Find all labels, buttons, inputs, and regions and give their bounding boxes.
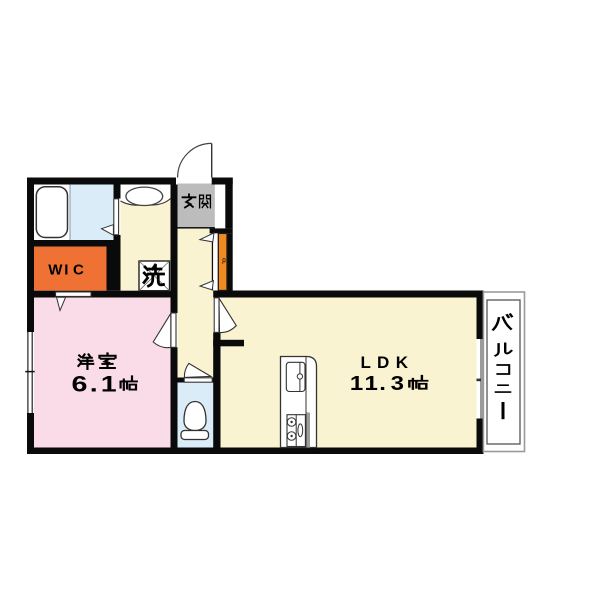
svg-text:CL: CL	[222, 258, 227, 264]
svg-text:6: 6	[71, 373, 87, 397]
svg-text:I: I	[64, 262, 68, 279]
svg-text:1: 1	[350, 372, 363, 395]
svg-text:C: C	[73, 262, 84, 279]
svg-text:W: W	[48, 262, 63, 279]
svg-text:3: 3	[391, 372, 404, 395]
svg-text:1: 1	[365, 372, 378, 395]
svg-text:.: .	[379, 372, 386, 395]
svg-text:1: 1	[101, 373, 117, 397]
svg-text:.: .	[90, 373, 98, 397]
svg-text:L: L	[361, 353, 371, 372]
svg-text:D: D	[377, 353, 389, 372]
svg-text:K: K	[396, 353, 409, 372]
